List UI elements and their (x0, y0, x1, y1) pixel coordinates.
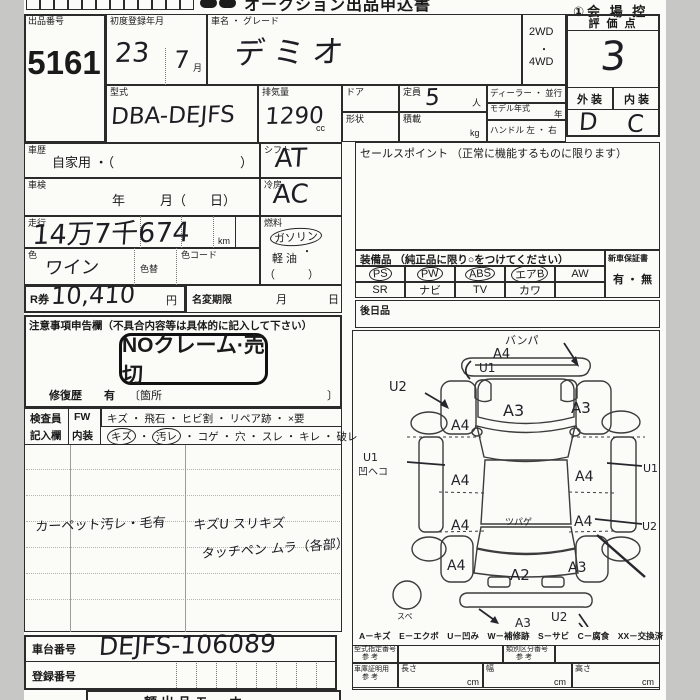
shaken-month: 月（ (160, 190, 186, 209)
ref-label: 参 考 (516, 654, 532, 661)
drive-4wd: 4WD (529, 56, 553, 68)
logo-icon (219, 0, 236, 8)
ann-left-front-door: A4 (451, 473, 470, 489)
ann-right-front-door: A4 (575, 469, 594, 485)
capacity-value: 5 (424, 85, 440, 111)
cm-unit: cm (642, 678, 654, 688)
damage-legend: A－キズ E－エクボ U－凹み W－補修跡 S－サビ C－腐食 XX－交換済 (359, 630, 657, 642)
score-value: 3 (599, 34, 628, 80)
first-registration-month: 7 (173, 46, 190, 74)
lot-number-value: 5161 (26, 44, 102, 82)
spare-label: スペ (397, 612, 412, 621)
scanned-sheet: オークション出品申込書 ①会 場 控 出品番号 5161 初度登録年月 23 7… (24, 0, 666, 700)
mileage-unit: km (218, 237, 230, 247)
handle-label: ハンドル 左 ・ 右 (490, 126, 557, 135)
repair-history-value: 有 (104, 387, 115, 403)
color-label: 色 (28, 251, 37, 261)
equip-tv: TV (473, 284, 487, 296)
ann-front-bumper-u: U1 (479, 361, 495, 375)
drive-dot: ・ (539, 41, 549, 56)
dealer-parallel-label: ディーラー ・ 並行 (490, 89, 562, 98)
exterior-grade: D (578, 108, 598, 136)
auction-sheet-page: オークション出品申込書 ①会 場 控 出品番号 5161 初度登録年月 23 7… (0, 0, 700, 700)
inspector-interior-key: 内装 (72, 428, 93, 443)
ann-right-side-u2: U2 (642, 520, 657, 533)
top-code-boxes (26, 0, 194, 10)
interior-label: 内 装 (613, 88, 660, 109)
fuel-gasoline-circled: ガソリン (269, 226, 322, 248)
fuel-diesel: 軽 油 (272, 250, 297, 266)
ann-roof-note: ツパゲ (505, 516, 532, 528)
model-desig-label: 型式指定番号 (354, 646, 396, 653)
interior-item-kizu-circled: キズ (106, 427, 136, 446)
remark-scratch: キズU スリキズ (193, 512, 286, 533)
interior-grade: C (626, 110, 645, 138)
equip-ps: PS (368, 266, 392, 282)
history-value: 自家用 ・（ (52, 152, 114, 171)
name-change-label: 名変期限 (192, 291, 232, 306)
equip-navi: ナビ (419, 282, 441, 298)
garage-cert-label: 車庫証明用 (354, 666, 389, 673)
shaken-day: 日） (210, 190, 236, 209)
equip-abs: ABS (465, 266, 496, 282)
car-damage-diagram: バンパ A4 U1 U2 A3 A3 A4 U1 凹ヘコ A4 A4 U1 A4… (355, 331, 657, 627)
chassis-label: 車台番号 (32, 641, 76, 657)
equip-aw: AW (571, 268, 588, 280)
ann-left-rear-door: A4 (451, 518, 470, 534)
equip-sr: SR (372, 284, 387, 296)
door-label: ドア (346, 88, 364, 98)
equip-pw: PW (417, 266, 444, 282)
repair-history-label: 修復歴 (49, 387, 82, 403)
model-year-unit: 年 (554, 110, 563, 119)
length-label: 長さ (401, 665, 417, 674)
ann-front-left-fender: A4 (451, 418, 470, 434)
capacity-label: 定員 (403, 88, 421, 98)
recycle-ticket-label: R券 (30, 291, 49, 307)
car-name-label: 車名 ・ グレード (211, 17, 279, 27)
ref-label: 参 考 (362, 674, 378, 681)
equip-leather: カワ (519, 282, 541, 298)
interior-dot: ・ (139, 431, 150, 443)
history-label: 車歴 (28, 146, 46, 156)
ann-front-bumper-note: バンパ (505, 334, 539, 347)
logo-icon (200, 0, 217, 8)
repair-location-close: 〕 (327, 387, 338, 403)
damage-annotations: バンパ A4 U1 U2 A3 A3 A4 U1 凹ヘコ A4 A4 U1 A4… (358, 334, 657, 627)
interior-items-rest: ・ コゲ ・ 穴 ・ スレ ・ キレ ・ 破レ (184, 431, 357, 443)
warranty-label: 新車保証書 (608, 253, 648, 264)
later-items-label: 後日品 (360, 302, 390, 317)
ann-rear-bottom-u: U2 (551, 610, 567, 624)
history-close: ） (240, 152, 253, 171)
fw-items-rest: ・ 飛石 ・ ヒビ割 ・ リペア跡 ・ ×要 (131, 413, 305, 425)
registration-label: 登録番号 (32, 668, 76, 684)
inspector-label-2: 記入欄 (30, 428, 62, 443)
ann-front-bumper-a: A4 (493, 347, 510, 362)
recycle-ticket-value: 10,410 (50, 281, 136, 310)
cutoff-bottom-text: 額出品モ ホ (144, 692, 246, 700)
ac-value: AC (272, 179, 310, 210)
interior-item-yogore-circled: 汚レ (152, 427, 182, 446)
ann-left-side-u: U1 (363, 451, 378, 464)
no-claim-stamp: NOクレーム·売切 (119, 333, 268, 385)
ann-right-side-u: U1 (643, 462, 657, 475)
spare-tire-icon (393, 581, 421, 609)
first-registration-year: 23 (114, 37, 151, 69)
shape-label: 形状 (346, 115, 364, 125)
load-label: 積載 (403, 115, 421, 125)
shift-value: AT (274, 143, 308, 174)
month-suffix: 月 (193, 64, 202, 74)
displacement-unit: cc (316, 124, 325, 134)
ann-hood: A3 (503, 401, 524, 420)
exterior-label: 外 装 (566, 88, 613, 109)
width-label: 幅 (486, 665, 494, 674)
sales-point-label: セールスポイント （正常に機能するものに限ります） (360, 145, 627, 161)
later-items-box (355, 300, 660, 328)
model-code-value: DBA-DEJFS (110, 102, 235, 130)
mileage-value: 14万7千674 (31, 210, 191, 252)
fuel-dot: ・ (302, 243, 312, 258)
ann-right-rear-quarter: A3 (568, 560, 586, 576)
fw-item-kizu: キズ (107, 413, 128, 425)
cm-unit: cm (467, 678, 479, 688)
ann-rear-bumper-a: A3 (515, 616, 531, 627)
first-registration-label: 初度登録年月 (110, 17, 164, 27)
ref-label: 参 考 (362, 654, 378, 661)
model-year-label: モデル年式 (490, 105, 530, 114)
shaken-year: 年 (112, 190, 125, 209)
load-unit: kg (470, 129, 480, 139)
fuel-paren: （ ） (264, 266, 319, 282)
sheet-title: オークション出品申込書 (244, 0, 431, 15)
name-change-month: 月 (276, 291, 287, 307)
yen-label: 円 (166, 292, 177, 308)
model-code-label: 型式 (110, 88, 128, 98)
capacity-unit: 人 (472, 99, 481, 109)
color-change-label: 色替 (140, 265, 158, 275)
lot-number-label: 出品番号 (28, 17, 64, 27)
ann-left-rear-quarter: A4 (447, 558, 466, 574)
ann-right-rear-door: A4 (574, 514, 593, 530)
displacement-label: 排気量 (262, 88, 289, 98)
repair-location-open: 〔箇所 (129, 387, 162, 403)
ann-tailgate: A2 (510, 566, 530, 584)
class-number-label: 類別区分番号 (506, 646, 548, 653)
color-value: ワイン (44, 253, 100, 280)
warranty-value: 有 ・ 無 (613, 271, 652, 287)
car-name-value: デミオ (233, 26, 353, 73)
drive-2wd: 2WD (529, 26, 553, 38)
color-code-label: 色コード (181, 251, 217, 261)
ann-left-side-note: 凹ヘコ (358, 467, 388, 478)
score-label: 評 価 点 (566, 15, 660, 30)
ann-front-left-u: U2 (389, 380, 407, 395)
shaken-label: 車検 (28, 181, 46, 191)
inspector-fw-key: FW (74, 411, 90, 423)
ann-front-right-fender: A3 (571, 399, 591, 417)
cm-unit: cm (554, 678, 566, 688)
height-label: 高さ (575, 665, 591, 674)
inspector-label-1: 検査員 (30, 411, 62, 426)
chassis-value: DEJFS-106089 (98, 629, 277, 661)
name-change-day: 日 (328, 291, 339, 307)
